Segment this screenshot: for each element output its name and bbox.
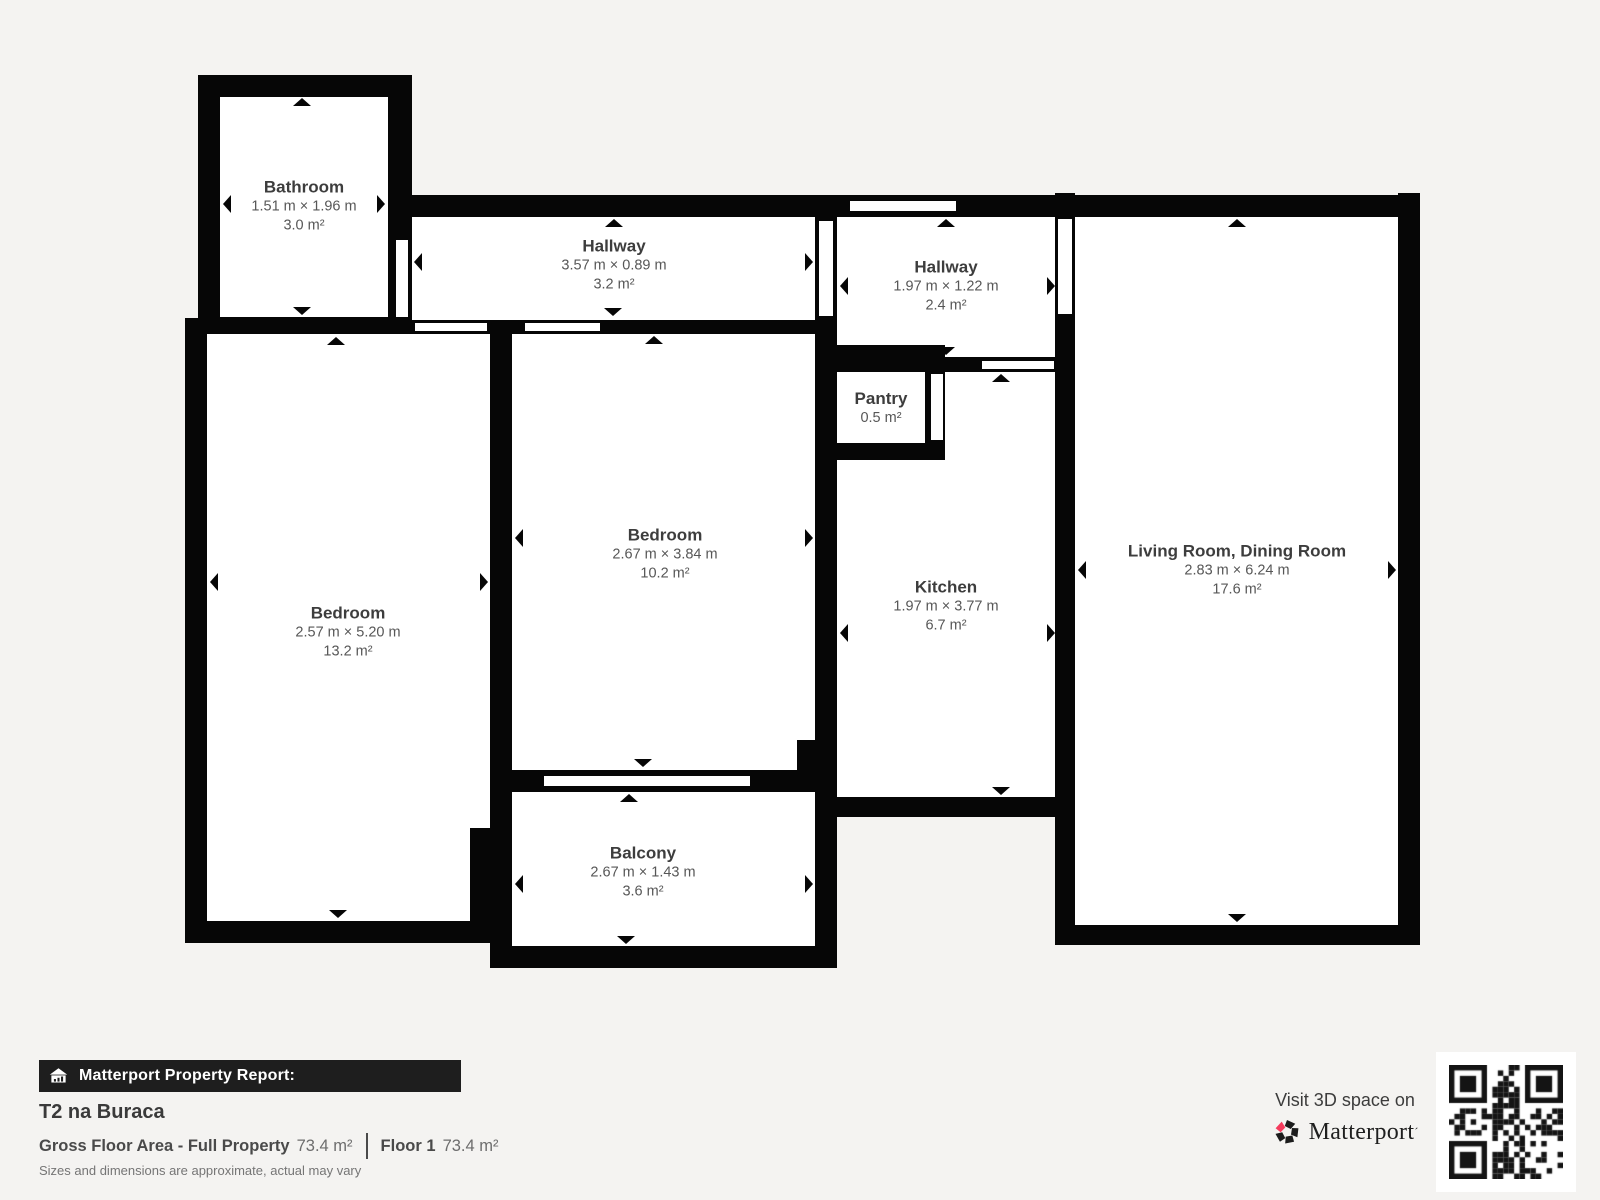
door-opening-hallways: [819, 221, 833, 316]
dimension-arrow-left-icon: [223, 195, 231, 213]
floor-label: Floor 1: [381, 1137, 436, 1156]
dimension-arrow-right-icon: [1047, 277, 1055, 295]
dimension-arrow-up-icon: [645, 336, 663, 344]
dimension-arrow-left-icon: [840, 277, 848, 295]
dimension-arrow-right-icon: [377, 195, 385, 213]
matterport-pinwheel-icon: [1272, 1117, 1302, 1147]
wall: [490, 320, 512, 968]
dimension-arrow-left-icon: [1078, 561, 1086, 579]
wall: [185, 318, 207, 943]
dimension-arrow-up-icon: [937, 219, 955, 227]
dimension-arrow-up-icon: [293, 98, 311, 106]
wall: [198, 75, 412, 97]
room-label-pantry: Pantry 0.5 m²: [855, 388, 908, 428]
wall: [490, 946, 837, 968]
dimension-arrow-left-icon: [840, 624, 848, 642]
dimension-arrow-down-icon: [293, 307, 311, 315]
report-banner: Matterport Property Report:: [39, 1060, 461, 1092]
disclaimer-text: Sizes and dimensions are approximate, ac…: [39, 1163, 361, 1178]
house-report-icon: [49, 1067, 68, 1086]
window: [413, 321, 489, 333]
matterport-wordmark: Matterport: [1309, 1119, 1415, 1146]
dimension-arrow-down-icon: [617, 936, 635, 944]
dimension-arrow-down-icon: [604, 308, 622, 316]
wall: [815, 792, 837, 968]
window: [848, 199, 958, 213]
trademark-mark: ´: [1414, 1122, 1418, 1142]
dimension-arrow-up-icon: [1228, 219, 1246, 227]
property-report-page: Bathroom 1.51 m × 1.96 m 3.0 m² Hallway …: [0, 0, 1600, 1200]
room-area-kitchen-upper: [945, 372, 1058, 471]
window: [542, 774, 752, 788]
dimension-arrow-left-icon: [414, 253, 422, 271]
report-banner-label: Matterport Property Report:: [79, 1067, 295, 1085]
dimension-arrow-down-icon: [992, 787, 1010, 795]
wall: [815, 797, 1058, 817]
floor-plan: Bathroom 1.51 m × 1.96 m 3.0 m² Hallway …: [0, 0, 1600, 1010]
divider: [366, 1133, 368, 1159]
dimension-arrow-up-icon: [327, 337, 345, 345]
wall: [198, 75, 220, 320]
gross-floor-area-label: Gross Floor Area - Full Property: [39, 1137, 290, 1156]
window: [980, 359, 1056, 371]
wall: [1055, 925, 1420, 945]
room-label-bedroom-left: Bedroom 2.57 m × 5.20 m 13.2 m²: [295, 603, 400, 662]
room-area-bedroom-left-lower: [207, 828, 470, 921]
door-opening-living: [1058, 219, 1072, 314]
wall: [815, 320, 837, 792]
room-area-bedroom-left: [207, 334, 490, 828]
room-label-hallway-1: Hallway 3.57 m × 0.89 m 3.2 m²: [561, 236, 666, 295]
dimension-arrow-right-icon: [480, 573, 488, 591]
dimension-arrow-down-icon: [937, 347, 955, 355]
room-label-hallway-2: Hallway 1.97 m × 1.22 m 2.4 m²: [893, 257, 998, 316]
room-label-bedroom-center: Bedroom 2.67 m × 3.84 m 10.2 m²: [612, 525, 717, 584]
room-label-balcony: Balcony 2.67 m × 1.43 m 3.6 m²: [590, 843, 695, 902]
room-label-kitchen: Kitchen 1.97 m × 3.77 m 6.7 m²: [893, 577, 998, 636]
floor-value: 73.4 m²: [443, 1137, 499, 1156]
wall: [185, 921, 490, 943]
dimension-arrow-left-icon: [210, 573, 218, 591]
dimension-arrow-left-icon: [515, 875, 523, 893]
dimension-arrow-down-icon: [634, 759, 652, 767]
dimension-arrow-up-icon: [605, 219, 623, 227]
room-label-living-dining: Living Room, Dining Room 2.83 m × 6.24 m…: [1128, 541, 1346, 600]
dimension-arrow-right-icon: [1047, 624, 1055, 642]
qr-panel: [1436, 1052, 1576, 1192]
dimension-arrow-right-icon: [805, 875, 813, 893]
dimension-arrow-up-icon: [992, 374, 1010, 382]
door-opening-pantry: [931, 374, 943, 440]
gross-floor-area-value: 73.4 m²: [297, 1137, 353, 1156]
dimension-arrow-left-icon: [515, 529, 523, 547]
visit-3d-space-text: Visit 3D space on: [1245, 1090, 1445, 1111]
door-opening-bathroom: [396, 240, 408, 317]
property-title: T2 na Buraca: [39, 1101, 165, 1124]
dimension-arrow-down-icon: [1228, 914, 1246, 922]
dimension-arrow-right-icon: [1388, 561, 1396, 579]
gross-floor-area-line: Gross Floor Area - Full Property 73.4 m²…: [39, 1133, 499, 1159]
room-label-bathroom: Bathroom 1.51 m × 1.96 m 3.0 m²: [251, 177, 356, 236]
dimension-arrow-right-icon: [805, 253, 813, 271]
matterport-logo: Matterport ´: [1245, 1117, 1445, 1147]
dimension-arrow-down-icon: [329, 910, 347, 918]
dimension-arrow-right-icon: [805, 529, 813, 547]
qr-code: [1449, 1065, 1563, 1179]
dimension-arrow-up-icon: [620, 794, 638, 802]
window: [523, 321, 602, 333]
matterport-promo: Visit 3D space on Matterport ´: [1245, 1090, 1445, 1147]
wall: [1398, 193, 1420, 945]
wall: [797, 740, 817, 772]
